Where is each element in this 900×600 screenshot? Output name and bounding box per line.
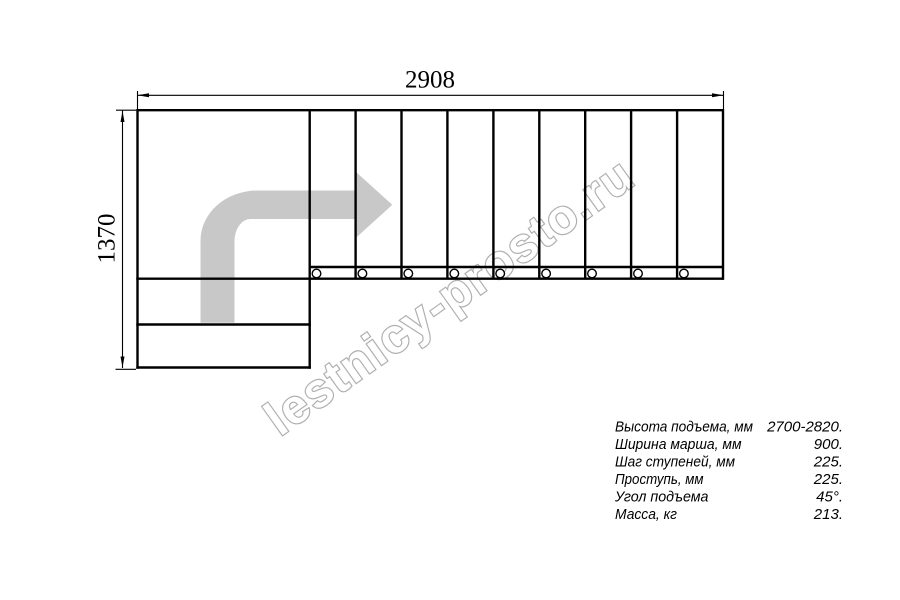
svg-text:45°.: 45°.	[816, 488, 843, 505]
svg-text:Высота подъема, мм: Высота подъема, мм	[615, 419, 753, 436]
svg-text:225.: 225.	[813, 471, 843, 488]
svg-text:2700-2820.: 2700-2820.	[766, 419, 843, 436]
svg-text:Проступь, мм: Проступь, мм	[615, 471, 704, 488]
svg-text:Ширина марша, мм: Ширина марша, мм	[615, 436, 742, 453]
svg-text:225.: 225.	[813, 454, 843, 471]
svg-text:Угол подъема: Угол подъема	[614, 488, 708, 505]
svg-text:Шаг ступеней, мм: Шаг ступеней, мм	[615, 454, 735, 471]
svg-text:Масса, кг: Масса, кг	[615, 506, 678, 523]
svg-text:1370: 1370	[94, 214, 121, 264]
svg-text:213.: 213.	[813, 506, 843, 523]
svg-text:2908: 2908	[405, 67, 455, 94]
svg-text:900.: 900.	[814, 436, 843, 453]
